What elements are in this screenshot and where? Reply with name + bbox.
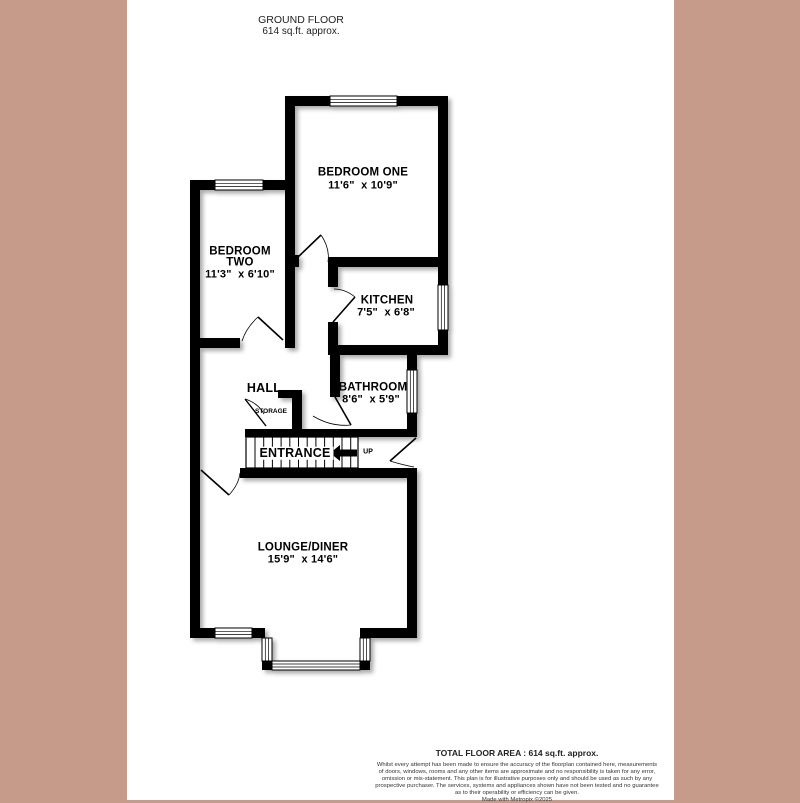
room-dims-bedroom-two: 11'3" x 6'10"	[205, 270, 275, 281]
wall	[360, 628, 417, 638]
wall	[285, 190, 295, 348]
floorplan-page: GROUND FLOOR 614 sq.ft. approx. BEDROOM …	[0, 0, 800, 800]
footer: TOTAL FLOOR AREA : 614 sq.ft. approx. Wh…	[317, 748, 717, 803]
disclaimer-line: of doors, windows, rooms and any other i…	[317, 769, 717, 776]
wall	[278, 390, 302, 398]
door-kitchen	[333, 289, 355, 322]
wall	[438, 96, 448, 285]
door-lounge	[201, 470, 240, 495]
floorplan-drawing	[0, 0, 800, 800]
wall	[292, 398, 302, 429]
room-label-lounge: LOUNGE/DINER	[258, 542, 349, 554]
window-lounge	[215, 628, 252, 638]
window-bathroom	[407, 370, 417, 413]
page-title: GROUND FLOOR	[258, 14, 344, 26]
window-bay-bottom	[272, 661, 360, 670]
wall	[328, 257, 448, 267]
door-entrance	[390, 438, 416, 467]
window-bay-right	[360, 638, 370, 661]
room-dims-lounge: 15'9" x 14'6"	[268, 555, 338, 566]
room-label-storage: STORAGE	[255, 409, 287, 416]
wall	[190, 338, 240, 348]
room-dims-kitchen: 7'5" x 6'8"	[357, 308, 415, 319]
wall	[360, 661, 370, 670]
wall	[190, 180, 215, 190]
door-bedroom-two	[242, 317, 283, 341]
walls-group	[190, 96, 448, 670]
page-subtitle: 614 sq.ft. approx.	[262, 26, 339, 37]
wall	[285, 96, 295, 190]
wall	[245, 429, 417, 437]
window-kitchen	[438, 285, 448, 330]
disclaimer-line: as to their operability or efficiency ca…	[317, 790, 717, 797]
room-label-bedroom-two-line2: TWO	[226, 257, 253, 269]
disclaimer-line: Whilst every attempt has been made to en…	[317, 762, 717, 769]
room-dims-bedroom-one: 11'6" x 10'9"	[328, 181, 398, 192]
window-bay-left	[262, 638, 272, 661]
wall	[407, 478, 417, 628]
wall	[240, 468, 417, 478]
stairs-up-label: UP	[363, 449, 373, 456]
wall	[407, 413, 417, 429]
room-label-bedroom-one: BEDROOM ONE	[318, 167, 408, 179]
room-label-kitchen: KITCHEN	[361, 295, 414, 307]
total-floor-area: TOTAL FLOOR AREA : 614 sq.ft. approx.	[317, 748, 717, 758]
wall	[190, 180, 200, 638]
room-label-entrance: ENTRANCE	[256, 447, 333, 460]
disclaimer-line: omission or mis-statement. This plan is …	[317, 776, 717, 783]
room-label-bathroom: BATHROOM	[339, 382, 407, 394]
disclaimer-line: prospective purchaser. The services, sys…	[317, 783, 717, 790]
wall	[252, 628, 265, 638]
room-label-hall: HALL	[247, 382, 281, 395]
wall	[262, 661, 272, 670]
wall	[328, 345, 448, 355]
wall	[328, 322, 338, 345]
window-bedroom-two	[215, 180, 263, 190]
wall	[328, 267, 338, 287]
room-dims-bathroom: 8'6" x 5'9"	[342, 395, 400, 406]
window-bedroom-one	[330, 96, 397, 106]
wall	[407, 355, 417, 370]
door-bedroom-one	[296, 235, 328, 262]
wall	[190, 628, 215, 638]
